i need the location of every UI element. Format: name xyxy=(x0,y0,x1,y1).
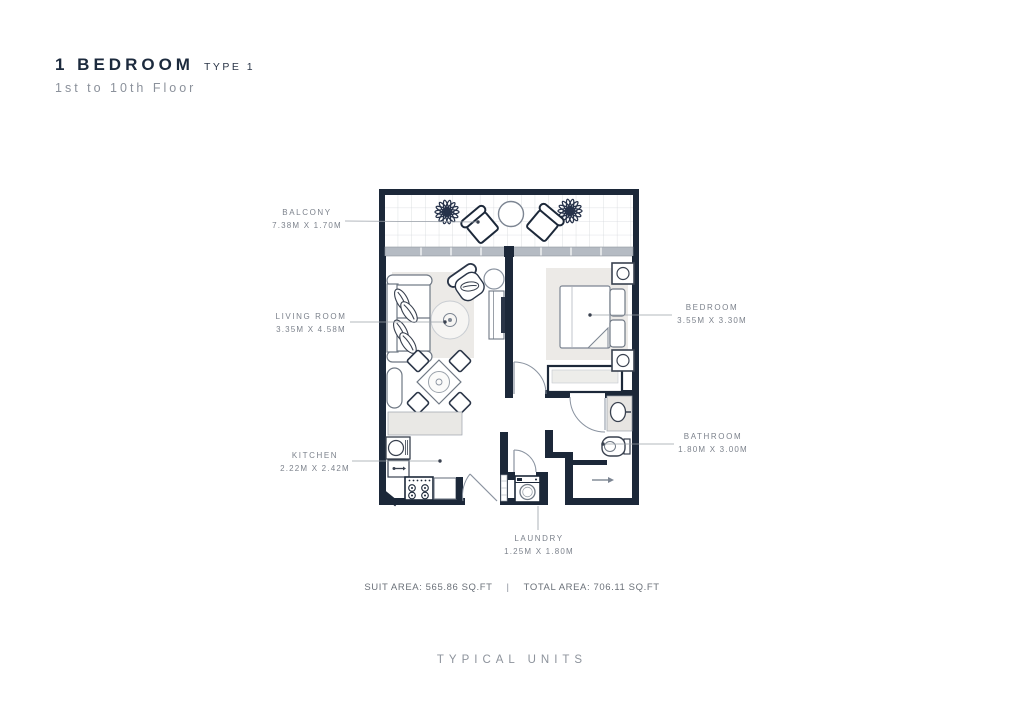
room-dims: 7.38M X 1.70M xyxy=(242,219,372,232)
fridge xyxy=(434,478,456,499)
plan-title: 1 BEDROOM xyxy=(55,55,194,75)
room-name: BEDROOM xyxy=(647,301,777,314)
shower xyxy=(573,460,614,483)
label-bathroom: BATHROOM 1.80M X 3.00M xyxy=(648,430,778,456)
kitchen-counter xyxy=(388,412,462,435)
plan-type-label: TYPE 1 xyxy=(204,61,255,73)
label-kitchen: KITCHEN 2.22M X 2.42M xyxy=(250,449,380,475)
nightstand xyxy=(612,350,634,371)
washing-machine xyxy=(515,476,540,502)
room-name: BALCONY xyxy=(242,206,372,219)
tv-console xyxy=(489,291,505,339)
label-laundry: LAUNDRY 1.25M X 1.80M xyxy=(474,532,604,558)
console-cabinet xyxy=(387,368,402,408)
living-room-group xyxy=(387,262,505,415)
room-name: KITCHEN xyxy=(250,449,380,462)
typical-units-label: TYPICAL UNITS xyxy=(0,654,1024,666)
page-title: 1 BEDROOM TYPE 1 xyxy=(55,55,255,75)
room-dims: 3.55M X 3.30M xyxy=(647,314,777,327)
area-divider: | xyxy=(507,582,510,593)
label-balcony: BALCONY 7.38M X 1.70M xyxy=(242,206,372,232)
laundry-group xyxy=(515,476,540,502)
label-living-room: LIVING ROOM 3.35M X 4.58M xyxy=(246,310,376,336)
room-dims: 2.22M X 2.42M xyxy=(250,462,380,475)
room-name: BATHROOM xyxy=(648,430,778,443)
nightstand xyxy=(612,263,634,284)
bathroom-sink xyxy=(607,396,632,431)
room-name: LAUNDRY xyxy=(474,532,604,545)
toilet xyxy=(602,437,630,456)
room-dims: 1.80M X 3.00M xyxy=(648,443,778,456)
total-area: TOTAL AREA: 706.11 SQ.FT xyxy=(524,582,660,593)
closet xyxy=(548,366,622,392)
label-bedroom: BEDROOM 3.55M X 3.30M xyxy=(647,301,777,327)
floor-plan-svg xyxy=(0,0,1024,724)
side-table xyxy=(484,269,504,289)
room-dims: 3.35M X 4.58M xyxy=(246,323,376,336)
kitchen-group xyxy=(386,412,463,500)
tv-icon xyxy=(501,297,505,333)
room-dims: 1.25M X 1.80M xyxy=(474,545,604,558)
bedroom-group xyxy=(546,263,634,392)
kitchen-unit xyxy=(388,460,409,477)
area-summary: SUIT AREA: 565.86 SQ.FT | TOTAL AREA: 70… xyxy=(0,582,1024,593)
suit-area: SUIT AREA: 565.86 SQ.FT xyxy=(364,582,492,593)
stored-door-panel xyxy=(501,475,507,501)
balcony-table xyxy=(499,202,524,227)
kitchen-sink xyxy=(386,437,410,459)
window-band xyxy=(385,246,633,257)
stove xyxy=(405,477,433,500)
bathroom-group xyxy=(573,396,632,483)
room-name: LIVING ROOM xyxy=(246,310,376,323)
dining-set xyxy=(407,350,472,415)
plan-subtitle: 1st to 10th Floor xyxy=(55,81,196,95)
balcony-group xyxy=(379,189,639,256)
